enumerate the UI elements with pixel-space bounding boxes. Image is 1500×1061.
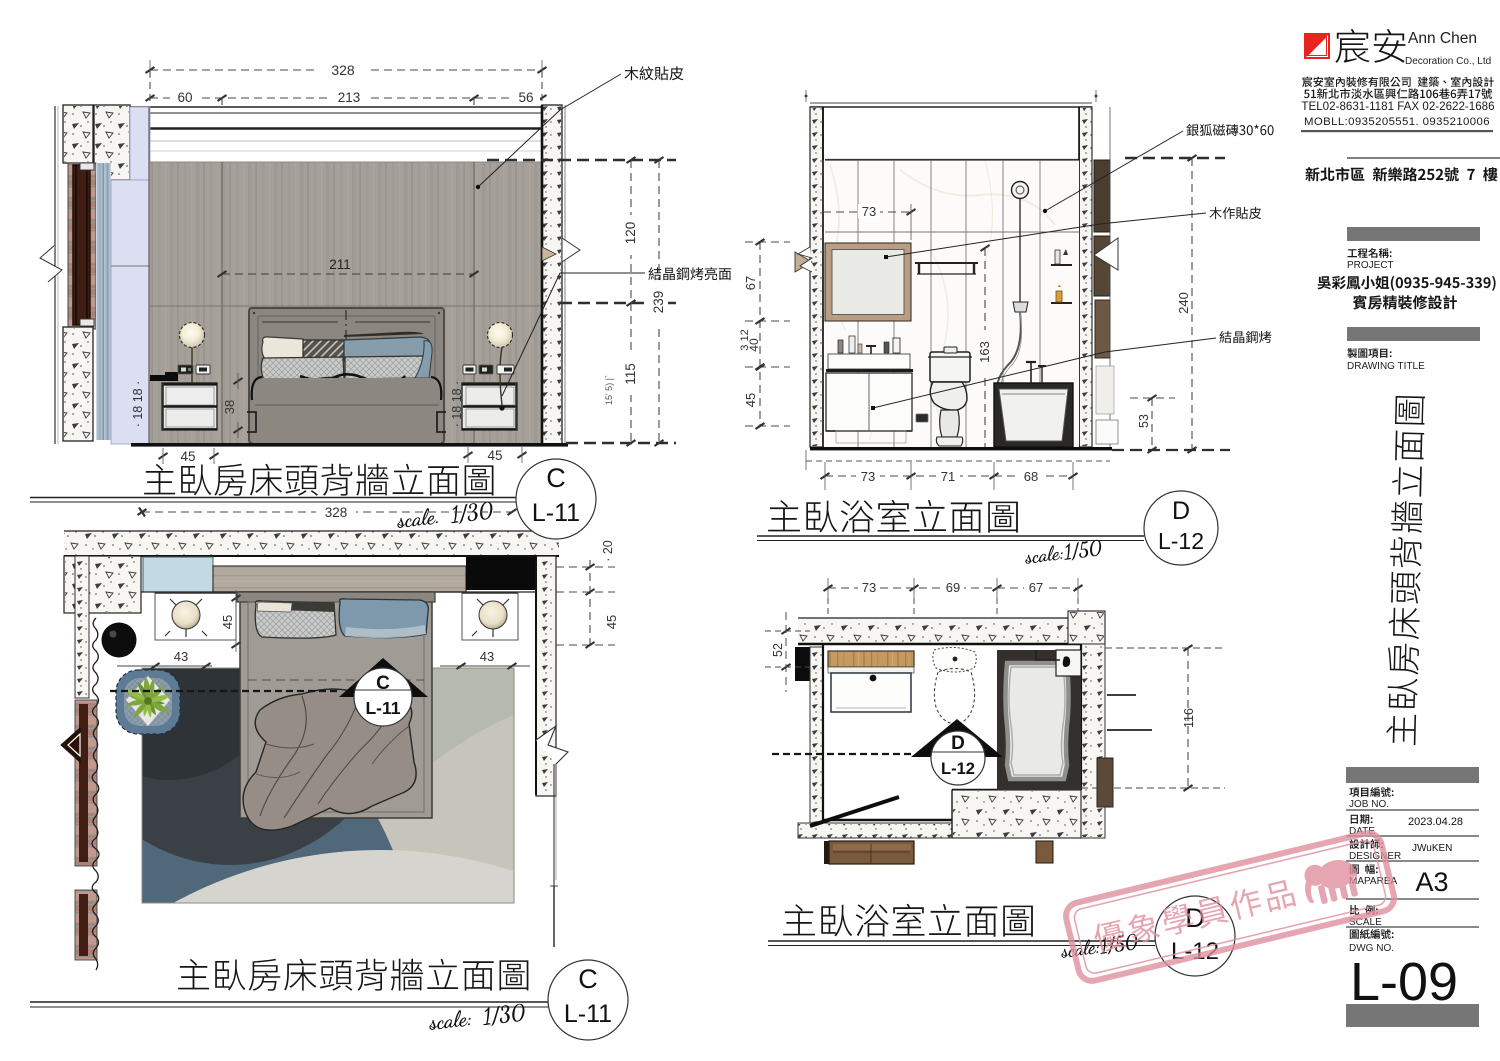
svg-text:D: D: [951, 733, 965, 754]
svg-text:60: 60: [177, 90, 192, 105]
svg-text:213: 213: [338, 90, 361, 105]
svg-text:53: 53: [1137, 414, 1151, 428]
svg-text:71: 71: [941, 469, 955, 484]
svg-text:15' 5) |`: 15' 5) |`: [604, 375, 614, 405]
svg-text:C: C: [578, 964, 598, 994]
svg-text:239: 239: [651, 291, 666, 314]
svg-text:L-09: L-09: [1350, 952, 1458, 1012]
svg-text:328: 328: [325, 505, 348, 520]
svg-text:40: 40: [747, 338, 761, 352]
svg-text:A3: A3: [1415, 867, 1448, 897]
svg-text:67: 67: [1029, 580, 1043, 595]
svg-text:· 20: · 20: [601, 540, 615, 562]
svg-text:JOB NO.: JOB NO.: [1349, 799, 1389, 810]
svg-text:120: 120: [623, 222, 638, 245]
svg-text:68: 68: [1024, 469, 1038, 484]
svg-text:· 18 18 ·: · 18 18 ·: [450, 381, 464, 428]
svg-text:45: 45: [604, 615, 619, 629]
svg-text:L-11: L-11: [564, 1000, 612, 1028]
svg-text:C: C: [376, 673, 390, 694]
svg-text:69: 69: [946, 580, 960, 595]
svg-text:MOBLL:0935205551. 0935210006: MOBLL:0935205551. 0935210006: [1304, 116, 1490, 128]
svg-text:67: 67: [743, 276, 758, 290]
svg-text:38: 38: [222, 400, 237, 414]
svg-text:DRAWING TITLE: DRAWING TITLE: [1347, 361, 1425, 372]
svg-text:163: 163: [977, 341, 992, 363]
svg-text:PROJECT: PROJECT: [1347, 260, 1394, 271]
svg-text:43: 43: [480, 649, 494, 664]
svg-text:L-11: L-11: [365, 698, 400, 718]
svg-text:328: 328: [331, 62, 355, 78]
svg-text:L-11: L-11: [532, 499, 580, 527]
svg-text:56: 56: [518, 90, 533, 105]
svg-text:45: 45: [743, 393, 758, 407]
svg-text:45: 45: [487, 448, 502, 463]
svg-text:115: 115: [623, 363, 638, 385]
svg-text:240: 240: [1176, 292, 1191, 314]
svg-text:73: 73: [862, 204, 876, 219]
svg-text:L-12: L-12: [941, 760, 975, 778]
svg-text:· 18 18 ·: · 18 18 ·: [131, 381, 145, 428]
svg-text:2023.04.28: 2023.04.28: [1408, 816, 1463, 828]
svg-text:73: 73: [862, 580, 876, 595]
svg-text:45: 45: [180, 449, 195, 464]
svg-text:TEL02-8631-1181 FAX 02-2622-16: TEL02-8631-1181 FAX 02-2622-1686: [1301, 100, 1494, 113]
svg-text:L-12: L-12: [1158, 528, 1204, 554]
svg-text:Ann Chen: Ann Chen: [1408, 30, 1477, 47]
svg-text:52: 52: [771, 643, 785, 657]
svg-text:JWuKEN: JWuKEN: [1412, 843, 1452, 854]
svg-text:73: 73: [861, 469, 875, 484]
svg-text:Decoration Co., Ltd: Decoration Co., Ltd: [1405, 56, 1491, 67]
svg-text:211: 211: [329, 257, 351, 272]
svg-text:C: C: [546, 463, 566, 493]
svg-text:43: 43: [174, 649, 188, 664]
svg-text:45: 45: [220, 615, 235, 629]
svg-text:116: 116: [1182, 708, 1196, 728]
svg-text:D: D: [1172, 497, 1190, 525]
